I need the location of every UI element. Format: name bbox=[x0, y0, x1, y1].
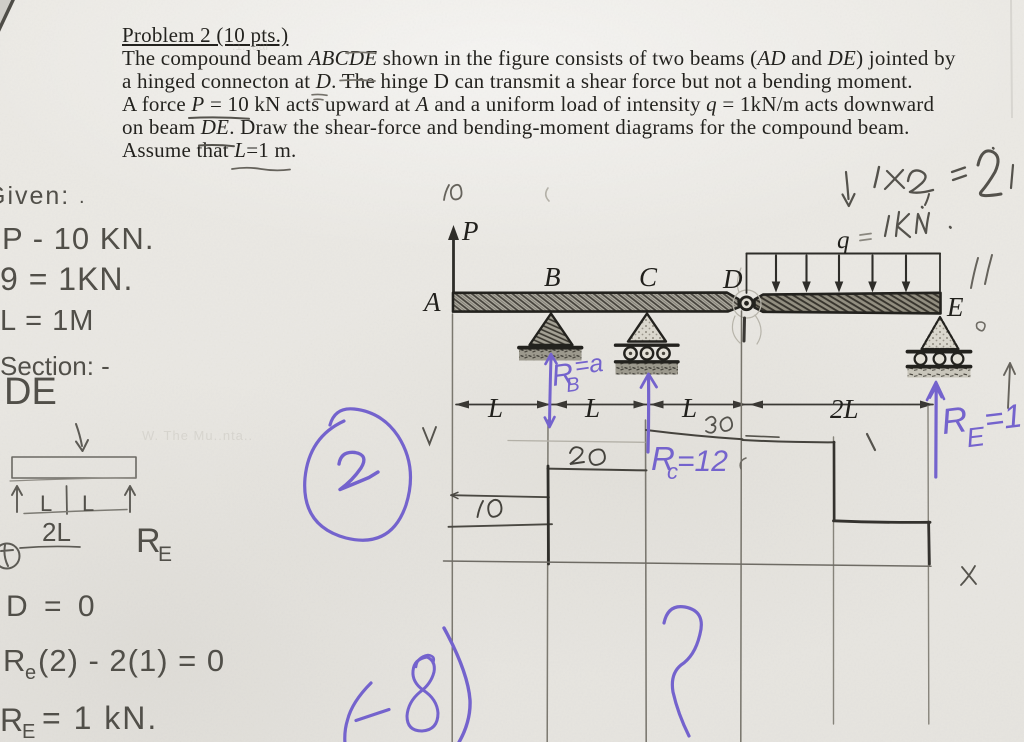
svg-text:=1: =1 bbox=[982, 397, 1024, 438]
svg-text:E: E bbox=[158, 543, 172, 566]
svg-text:(2) - 2(1) = 0: (2) - 2(1) = 0 bbox=[38, 643, 225, 678]
svg-text:P: P bbox=[461, 216, 479, 246]
svg-text:.: . bbox=[79, 186, 85, 208]
svg-text:2L: 2L bbox=[830, 394, 859, 424]
svg-text:=12: =12 bbox=[677, 445, 728, 478]
svg-text:W. The Mu..nta..: W. The Mu..nta.. bbox=[142, 428, 253, 443]
svg-text::1. .aal: :1. .aal bbox=[232, 39, 268, 53]
svg-text:DE: DE bbox=[4, 371, 57, 413]
svg-text:R: R bbox=[939, 398, 970, 442]
svg-text:L: L bbox=[584, 393, 600, 423]
svg-text:L: L bbox=[82, 491, 94, 516]
svg-text:L = 1M: L = 1M bbox=[0, 305, 94, 337]
svg-text:= 1 kN.: = 1 kN. bbox=[42, 700, 158, 736]
svg-text:C: C bbox=[639, 262, 658, 292]
svg-text:L: L bbox=[40, 491, 52, 516]
svg-text:A: A bbox=[422, 287, 441, 317]
svg-text:L: L bbox=[681, 393, 697, 423]
svg-text:D = 0: D = 0 bbox=[6, 590, 99, 623]
svg-text:e: e bbox=[25, 662, 36, 684]
svg-text:2L: 2L bbox=[42, 517, 71, 547]
svg-text:D: D bbox=[722, 264, 743, 294]
svg-text:L: L bbox=[487, 393, 503, 423]
svg-text:Given:: Given: bbox=[0, 182, 70, 210]
svg-text:B: B bbox=[544, 262, 561, 292]
svg-text:R: R bbox=[0, 702, 23, 738]
svg-text:R: R bbox=[3, 643, 25, 678]
svg-text:R: R bbox=[136, 522, 161, 560]
svg-text:E: E bbox=[946, 292, 964, 322]
svg-text:E: E bbox=[22, 721, 35, 742]
svg-text:q: q bbox=[837, 227, 850, 254]
svg-text:=a: =a bbox=[573, 349, 605, 381]
svg-text:P - 10 KN.: P - 10 KN. bbox=[2, 221, 154, 256]
svg-text:9 = 1KN.: 9 = 1KN. bbox=[0, 261, 133, 297]
